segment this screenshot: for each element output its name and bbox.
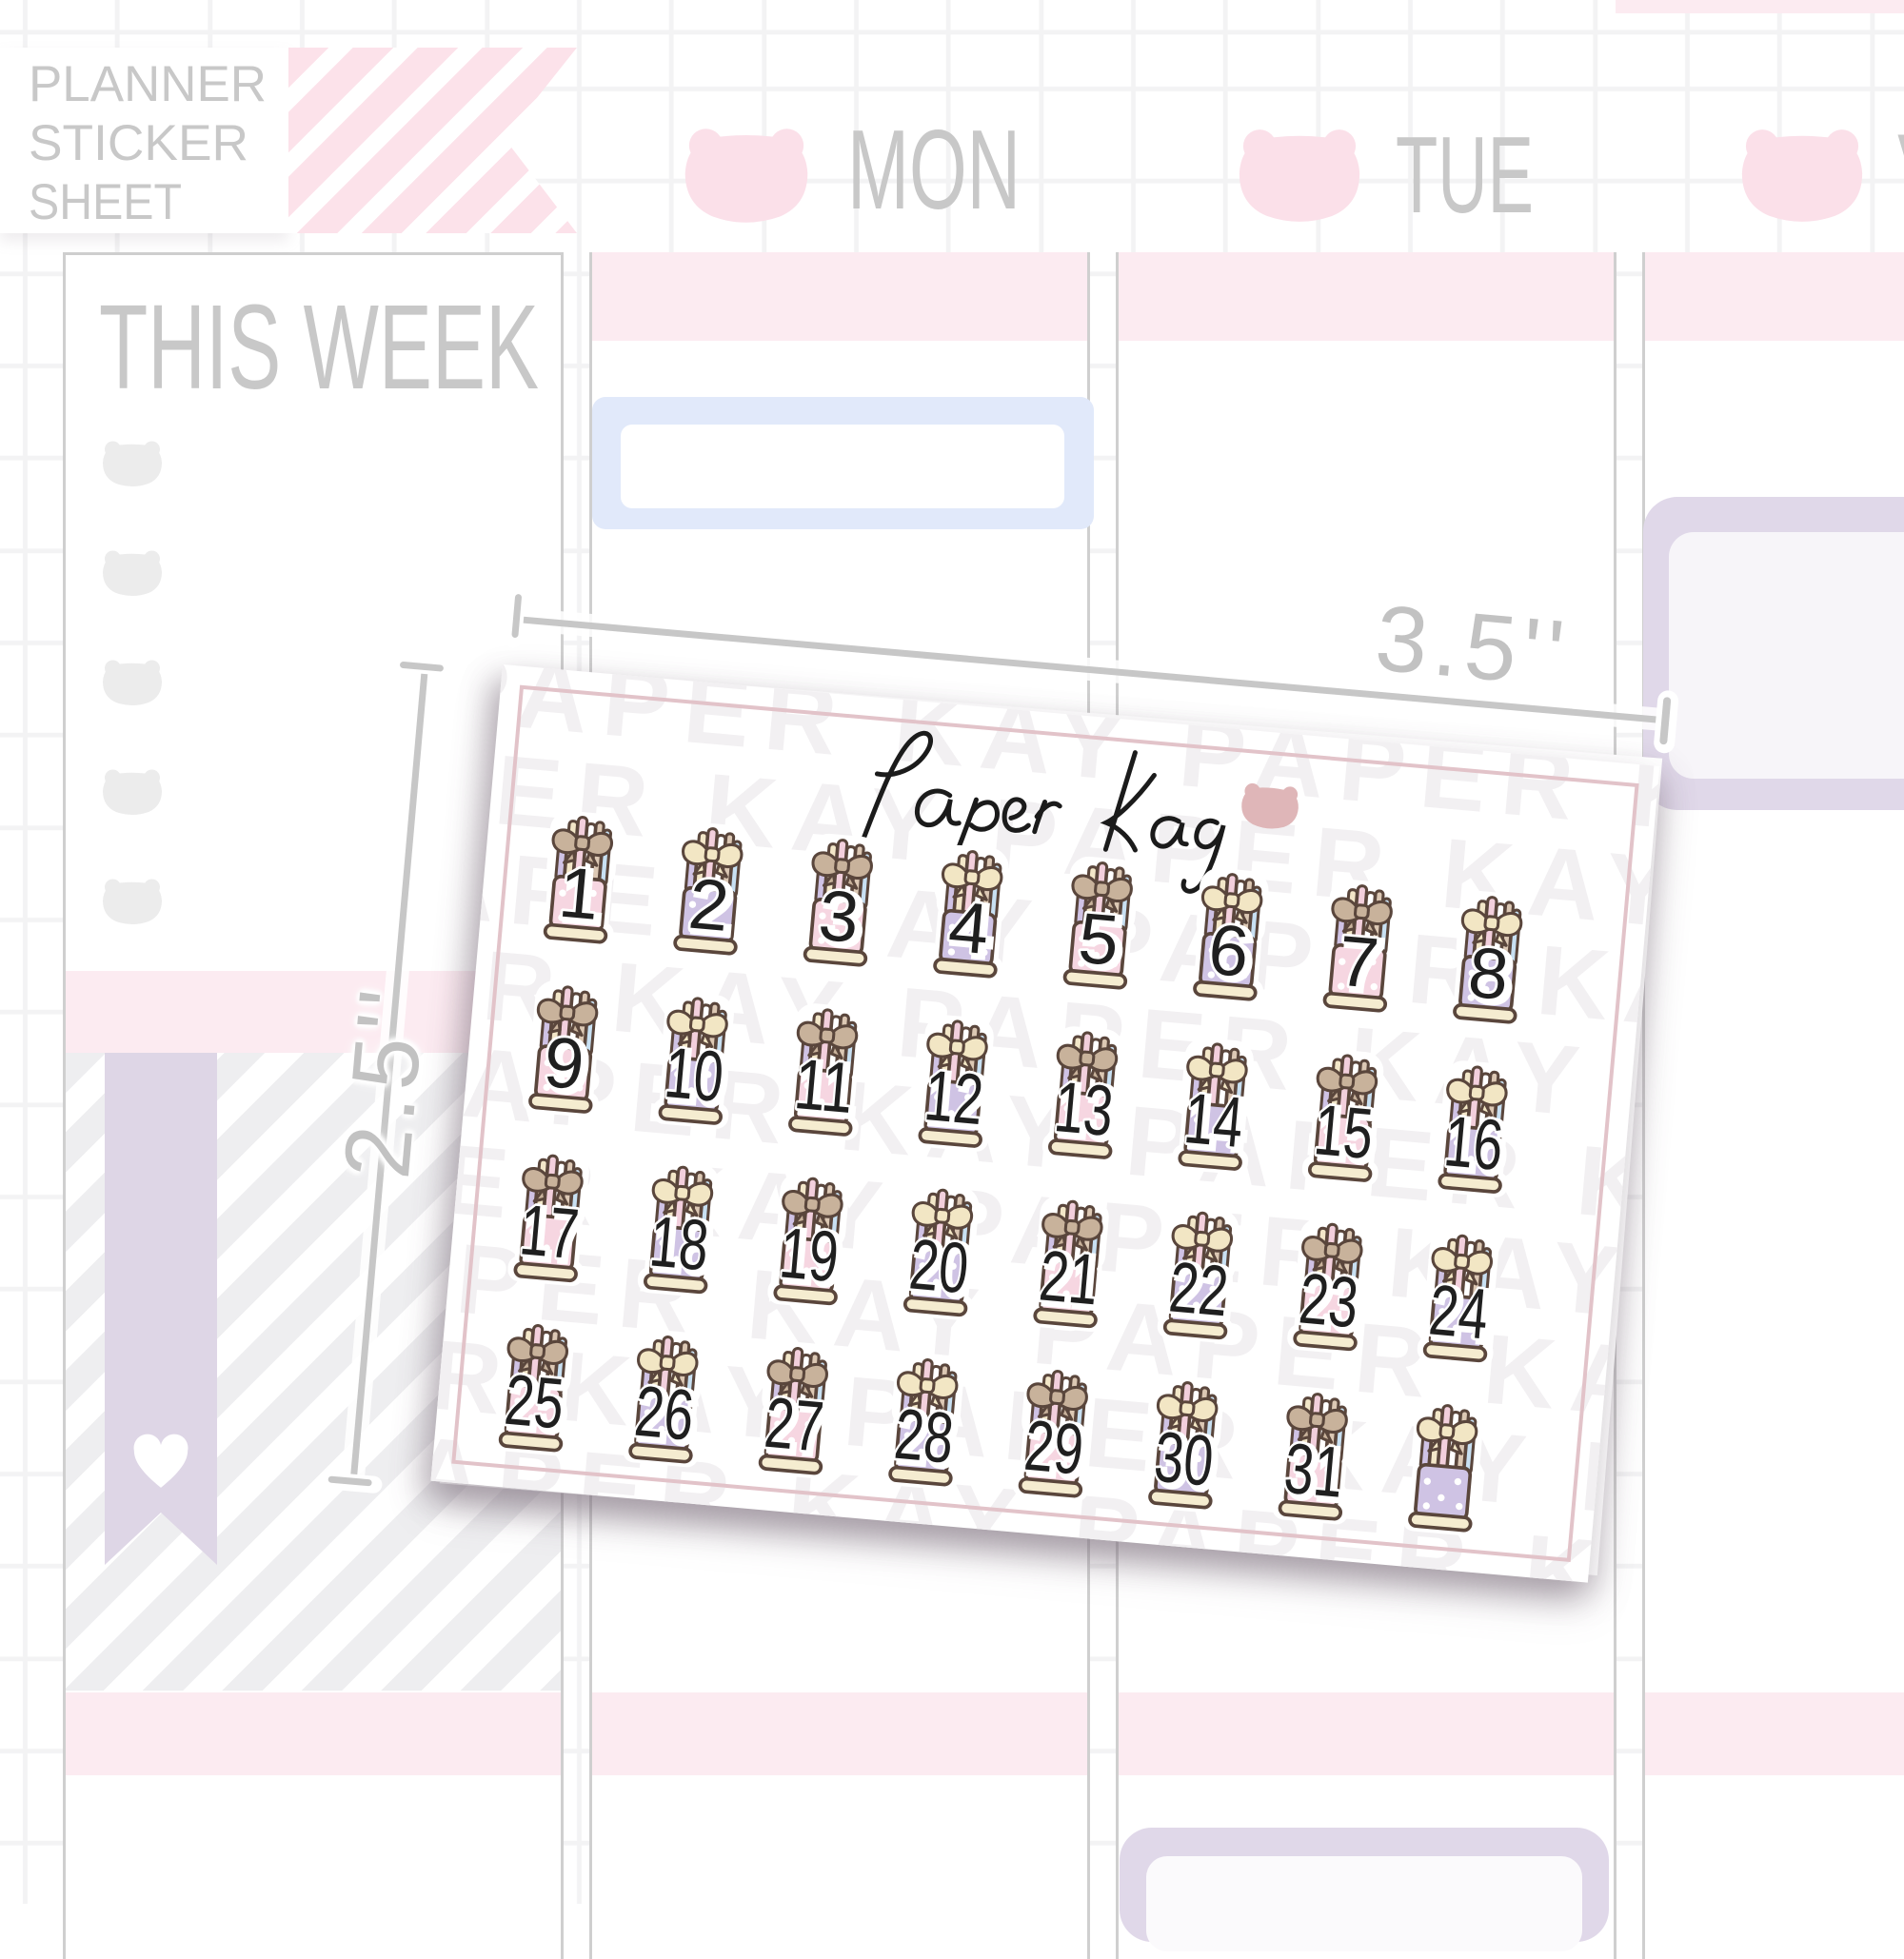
svg-text:PLANNER: PLANNER — [29, 56, 267, 112]
svg-text:30: 30 — [1151, 1416, 1217, 1501]
svg-text:MON: MON — [847, 107, 1021, 219]
svg-text:STICKER: STICKER — [29, 115, 248, 171]
svg-text:7: 7 — [1336, 920, 1382, 1003]
svg-text:10: 10 — [662, 1032, 727, 1117]
svg-text:27: 27 — [762, 1382, 827, 1467]
svg-text:19: 19 — [777, 1212, 843, 1296]
svg-text:THIS WEEK: THIS WEEK — [99, 282, 539, 406]
svg-text:W: W — [1897, 110, 1904, 219]
svg-text:13: 13 — [1051, 1066, 1117, 1151]
svg-text:15: 15 — [1311, 1089, 1377, 1174]
svg-text:24: 24 — [1426, 1269, 1492, 1354]
svg-text:4: 4 — [945, 886, 992, 969]
svg-text:8: 8 — [1465, 932, 1512, 1015]
svg-text:21: 21 — [1037, 1235, 1102, 1319]
svg-text:11: 11 — [791, 1043, 857, 1128]
svg-text:17: 17 — [517, 1189, 583, 1274]
svg-text:5: 5 — [1076, 898, 1122, 980]
svg-text:6: 6 — [1205, 909, 1252, 992]
svg-text:2: 2 — [685, 863, 732, 946]
svg-text:14: 14 — [1181, 1078, 1247, 1162]
svg-text:29: 29 — [1021, 1405, 1087, 1490]
svg-text:28: 28 — [891, 1394, 957, 1478]
svg-text:SHEET: SHEET — [29, 174, 182, 230]
svg-text:TUE: TUE — [1396, 115, 1534, 219]
svg-text:12: 12 — [922, 1055, 987, 1139]
svg-text:31: 31 — [1281, 1428, 1347, 1513]
svg-text:22: 22 — [1166, 1246, 1232, 1331]
svg-text:20: 20 — [906, 1223, 972, 1308]
svg-text:18: 18 — [646, 1200, 712, 1285]
svg-text:9: 9 — [541, 1021, 587, 1104]
svg-text:1: 1 — [556, 852, 603, 935]
svg-text:26: 26 — [631, 1371, 697, 1455]
svg-text:16: 16 — [1441, 1100, 1507, 1185]
svg-text:23: 23 — [1297, 1257, 1362, 1342]
svg-text:3: 3 — [816, 875, 863, 958]
svg-text:25: 25 — [502, 1359, 567, 1444]
